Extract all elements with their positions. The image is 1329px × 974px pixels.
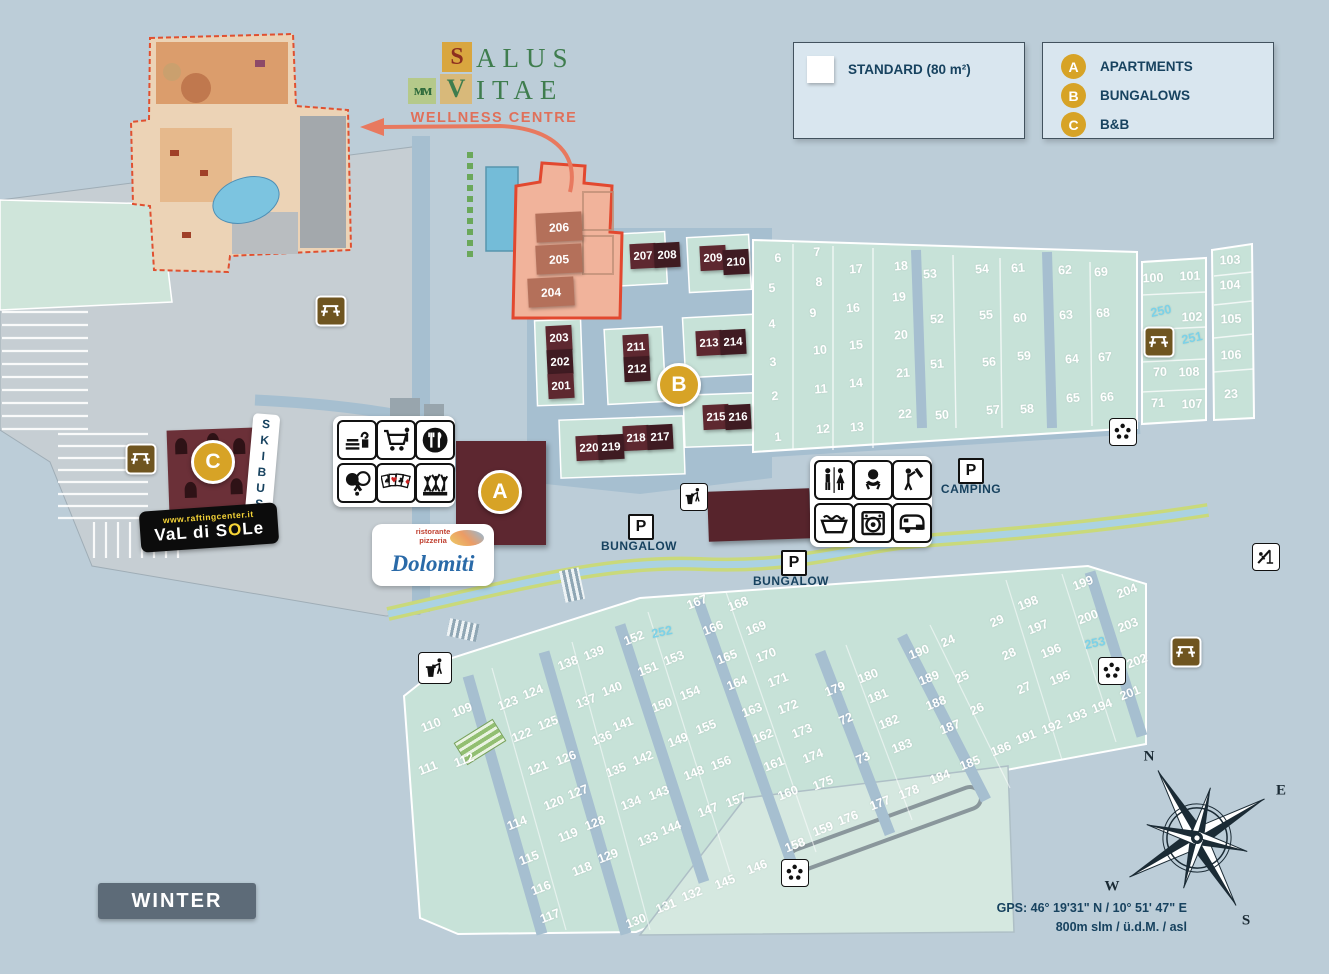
pitch-number: 70	[1153, 365, 1167, 379]
pitch-number: 58	[1020, 402, 1035, 417]
pitch-number: 60	[1013, 311, 1028, 326]
pitch-number: 14	[849, 376, 864, 391]
picnic-table-icon	[1144, 327, 1175, 358]
pitch-number: 65	[1066, 391, 1081, 406]
bungalow-unit: 202	[546, 349, 573, 375]
pitch-number: 69	[1094, 265, 1109, 280]
logo-v-square: V	[440, 74, 472, 104]
recycle-icon	[781, 859, 809, 887]
pitch-number: 53	[923, 267, 938, 282]
pitch-number: 102	[1181, 310, 1202, 325]
pitch-number: 101	[1179, 269, 1200, 284]
campsite-map: S ALUS ᴍᴍ V ITAE WELLNESS CENTRE STANDAR…	[0, 0, 1329, 974]
dishwashing-icon	[337, 420, 377, 460]
gps-line2: 800m slm / ü.d.M. / asl	[925, 918, 1187, 937]
pitch-number: 55	[979, 308, 994, 323]
pitch-number: 67	[1098, 350, 1113, 365]
logo-word-salus: ALUS	[476, 45, 575, 72]
pitch-number: 13	[850, 420, 865, 435]
pitch-number: 21	[896, 366, 911, 381]
bungalow-unit: 218	[622, 425, 649, 451]
bungalow-unit: 210	[722, 249, 749, 275]
sun-o-glyph: O	[227, 520, 243, 540]
legend-c-badge: C	[1061, 112, 1086, 137]
pitch-number: 19	[892, 290, 907, 305]
pitch-number: 68	[1096, 306, 1111, 321]
bungalow-left-label: BUNGALOW	[601, 539, 677, 553]
ristorante-label: ristorante	[416, 527, 451, 536]
legend-pitch-types: STANDARD (80 m²)	[793, 42, 1025, 139]
pizzeria-label: pizzeria	[419, 536, 447, 545]
pitch-number: 10	[813, 343, 828, 358]
pitch-number: 12	[816, 422, 831, 437]
apartment-unit: 204	[527, 276, 574, 307]
legend-accommodation: A APARTMENTS B BUNGALOWS C B&B	[1042, 42, 1274, 139]
sanitary-icons-panel	[810, 456, 932, 547]
legend-b-badge: B	[1061, 83, 1086, 108]
laundry-icon	[853, 503, 893, 543]
bungalow-unit: 214	[719, 329, 746, 355]
pitch-number: 23	[1224, 387, 1238, 401]
bungalow-unit: 217	[646, 424, 673, 450]
wellness-centre-label: WELLNESS CENTRE	[408, 110, 580, 126]
pitch-number: 5	[768, 281, 776, 295]
bungalow-right-label: BUNGALOW	[753, 574, 829, 588]
bungalow-unit: 207	[629, 243, 656, 269]
restaurant-icon	[415, 420, 455, 460]
svg-text:♦: ♦	[404, 477, 411, 486]
pitch-number: 51	[930, 357, 945, 372]
pitch-number: 22	[898, 407, 913, 422]
logo-word-vitae: ITAE	[476, 77, 563, 104]
marker-bungalows: B	[657, 363, 701, 407]
pitch-number: 104	[1219, 278, 1240, 293]
camping-label: CAMPING	[941, 482, 1001, 496]
table-tennis-icon	[337, 463, 377, 503]
compass-w: W	[1105, 879, 1120, 896]
pitch-number: 71	[1151, 396, 1165, 410]
pitch-number: 15	[849, 338, 864, 353]
bungalow-unit: 212	[623, 356, 650, 382]
parking-sign-camping: P	[958, 458, 984, 484]
pitch-number: 3	[769, 355, 777, 369]
pitch-number: 59	[1017, 349, 1032, 364]
bungalow-unit: 216	[724, 404, 751, 430]
apartment-unit: 206	[535, 211, 582, 242]
marker-bb: C	[191, 440, 235, 484]
pasta-illustration	[450, 530, 484, 546]
pitch-number: 9	[809, 306, 817, 320]
playground-icon	[1252, 543, 1280, 571]
pitch-number: 4	[768, 317, 776, 331]
playing-cards-icon: ♠♥♣♦	[376, 463, 416, 503]
pitch-number: 56	[982, 355, 997, 370]
standard-pitch-swatch	[807, 56, 834, 83]
pitch-number: 103	[1219, 253, 1240, 268]
pitch-number: 17	[849, 262, 864, 277]
pitch-number: 20	[894, 328, 909, 343]
salus-vitae-logo: S ALUS ᴍᴍ V ITAE WELLNESS CENTRE	[408, 42, 588, 126]
winter-badge: WINTER	[98, 883, 256, 919]
svg-text:♠: ♠	[384, 477, 391, 486]
pitch-number: 16	[846, 301, 861, 316]
waste-icon	[680, 483, 708, 511]
shower-icon	[892, 460, 932, 500]
pitch-number: 1	[774, 430, 782, 444]
parking-sign-bungalow-right: P	[781, 550, 807, 576]
pitch-number: 108	[1178, 365, 1199, 380]
dolomiti-name: Dolomiti	[378, 551, 488, 577]
pitch-number: 63	[1059, 308, 1074, 323]
dolomiti-restaurant-logo: ristorante pizzeria Dolomiti	[372, 524, 494, 586]
pitch-number: 106	[1220, 348, 1241, 363]
bungalow-unit: 208	[653, 242, 680, 268]
pitch-number: 54	[975, 262, 990, 277]
pitch-number: 107	[1181, 397, 1202, 412]
pitch-number: 66	[1100, 390, 1115, 405]
standard-pitch-label: STANDARD (80 m²)	[848, 62, 971, 77]
pitch-number: 8	[815, 275, 823, 289]
pitch-number: 50	[935, 408, 950, 423]
gps-coordinates: GPS: 46° 19'31" N / 10° 51' 47" E 800m s…	[925, 899, 1187, 938]
pitch-number: 100	[1142, 271, 1163, 286]
legend-b-label: BUNGALOWS	[1100, 88, 1190, 103]
pitch-number: 7	[813, 245, 821, 259]
washing-sinks-icon	[814, 503, 854, 543]
marker-apartments: A	[478, 470, 522, 514]
waste-icon	[418, 652, 452, 684]
baby-room-icon	[853, 460, 893, 500]
pitch-number: 61	[1011, 261, 1026, 276]
legend-a-badge: A	[1061, 54, 1086, 79]
bungalow-unit: 201	[547, 373, 574, 399]
pitch-number: 64	[1065, 352, 1080, 367]
pitch-number: 18	[894, 259, 909, 274]
parking-sign-bungalow-left: P	[628, 514, 654, 540]
pitch-number: 6	[774, 251, 782, 265]
pitch-number: 52	[930, 312, 945, 327]
entertainment-icon	[415, 463, 455, 503]
compass-e: E	[1276, 783, 1286, 800]
pitch-number: 62	[1058, 263, 1073, 278]
bungalow-unit: 213	[695, 330, 722, 356]
picnic-table-icon	[1171, 637, 1202, 668]
bungalow-unit: 203	[545, 325, 572, 351]
recycle-icon	[1098, 657, 1126, 685]
bungalow-unit: 219	[597, 434, 624, 460]
compass-n: N	[1144, 749, 1155, 766]
wc-icon	[814, 460, 854, 500]
pitch-number: 11	[814, 382, 828, 397]
recycle-icon	[1109, 418, 1137, 446]
camper-service-icon	[892, 503, 932, 543]
market-icon	[376, 420, 416, 460]
legend-c-label: B&B	[1100, 117, 1129, 132]
compass-s: S	[1242, 913, 1250, 930]
logo-mountains-square: ᴍᴍ	[408, 78, 436, 104]
service-icons-panel: ♠♥♣♦	[333, 416, 455, 507]
logo-s-square: S	[442, 42, 472, 72]
pitch-number: 57	[986, 403, 1001, 418]
picnic-table-icon	[126, 444, 157, 475]
gps-line1: GPS: 46° 19'31" N / 10° 51' 47" E	[925, 899, 1187, 918]
picnic-table-icon	[316, 296, 347, 327]
pitch-number: 105	[1220, 312, 1241, 327]
apartment-unit: 205	[535, 243, 582, 274]
legend-a-label: APARTMENTS	[1100, 59, 1193, 74]
pitch-number: 2	[771, 389, 779, 403]
sanitary-building	[707, 488, 811, 542]
